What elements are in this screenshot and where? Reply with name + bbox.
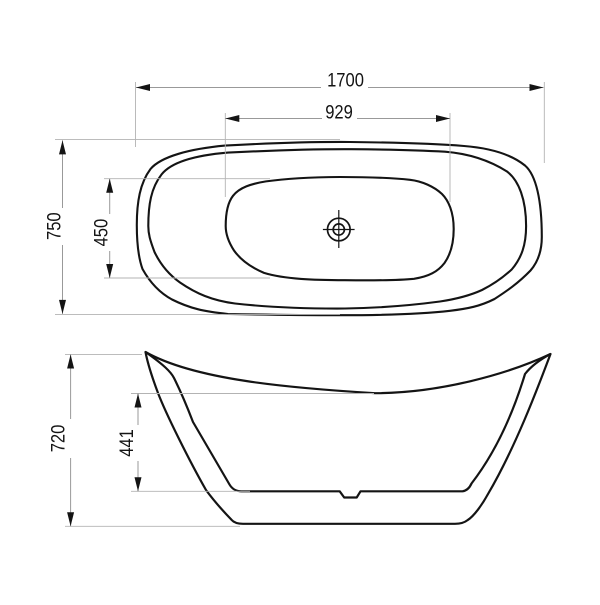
svg-text:929: 929 [325, 101, 353, 123]
svg-text:441: 441 [116, 429, 138, 457]
svg-text:720: 720 [47, 425, 69, 453]
svg-text:750: 750 [43, 212, 65, 240]
svg-text:450: 450 [90, 219, 112, 247]
svg-text:1700: 1700 [327, 69, 364, 91]
